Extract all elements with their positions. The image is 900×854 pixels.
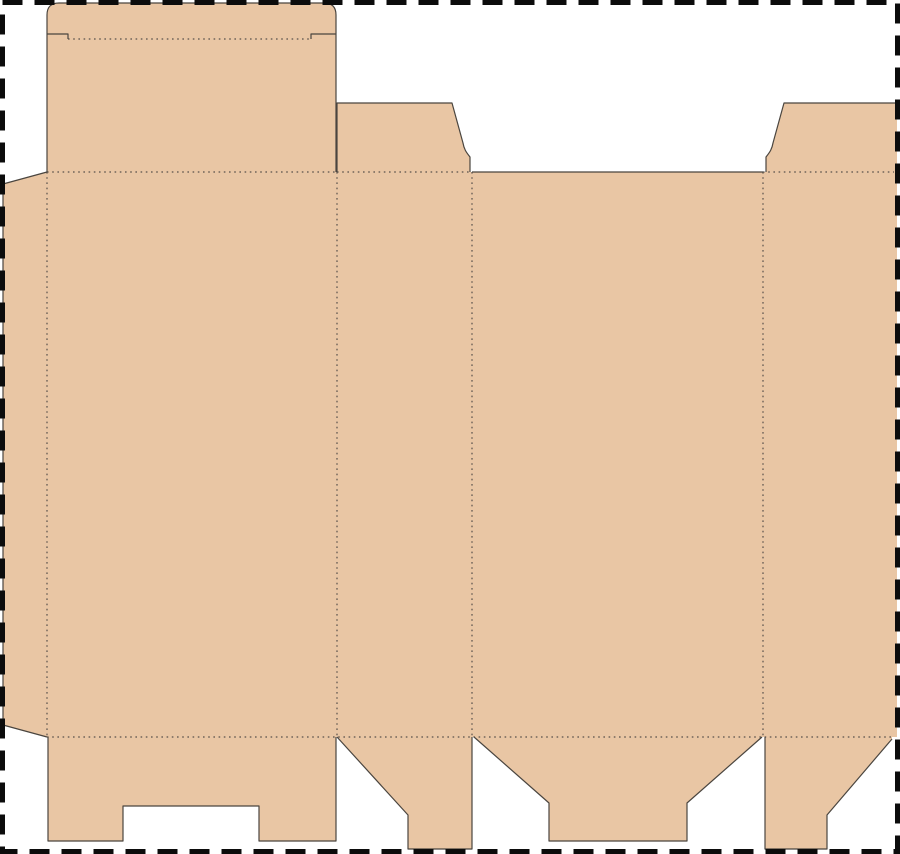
dieline-svg <box>0 0 900 854</box>
dieline-canvas <box>0 0 900 854</box>
bottom-flap-back <box>474 737 762 841</box>
dust-flap-top-left <box>337 103 470 172</box>
bottom-flap-right <box>765 737 892 849</box>
glue-flap <box>3 172 47 737</box>
dieline-pieces-layer <box>3 3 897 849</box>
bottom-flap-left <box>337 737 472 849</box>
tuck-lid <box>47 3 336 172</box>
bottom-flap-front <box>48 737 336 841</box>
dust-flap-top-right <box>766 103 897 172</box>
